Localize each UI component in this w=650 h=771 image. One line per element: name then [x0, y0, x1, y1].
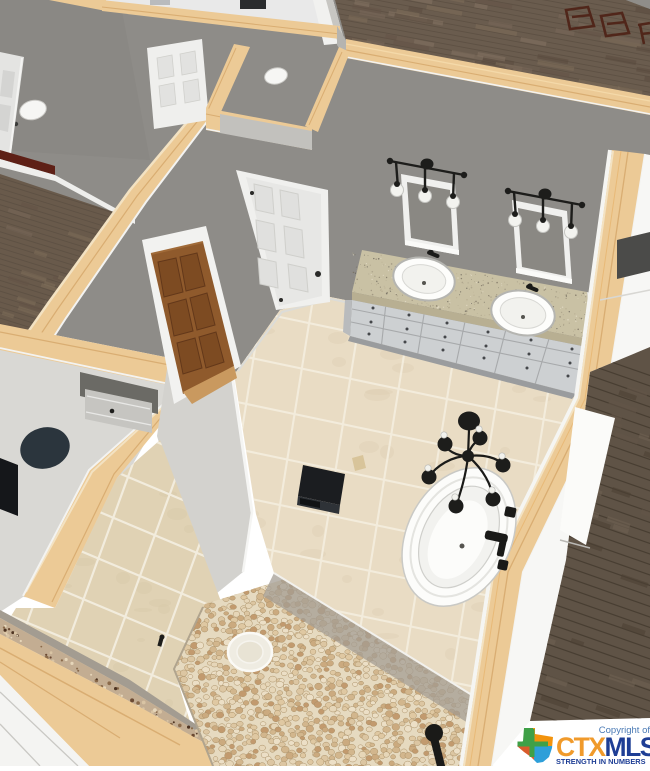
svg-text:STRENGTH IN NUMBERS: STRENGTH IN NUMBERS [556, 757, 646, 766]
